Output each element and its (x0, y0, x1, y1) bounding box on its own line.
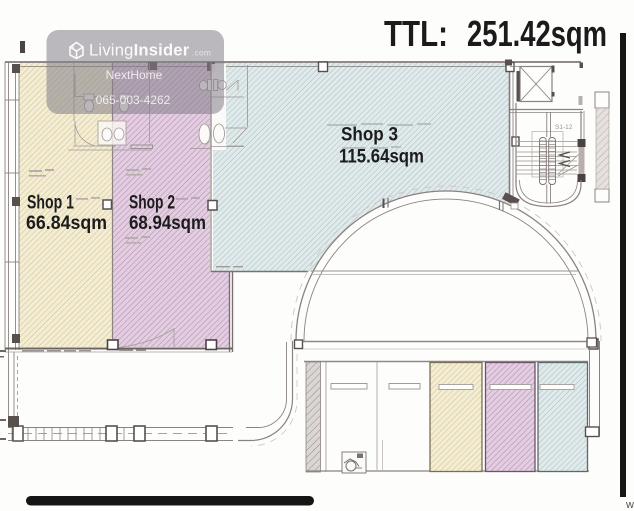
svg-text:66.84sqm: 66.84sqm (26, 213, 107, 234)
svg-text:Shop 2: Shop 2 (129, 193, 175, 214)
svg-text:68.94sqm: 68.94sqm (129, 213, 206, 234)
svg-text:TTL:: TTL: (384, 13, 448, 54)
svg-text:NextHome: NextHome (106, 68, 163, 82)
svg-text:S1-12: S1-12 (555, 124, 573, 131)
svg-text:Shop 3: Shop 3 (341, 124, 398, 146)
svg-text:251.42sqm: 251.42sqm (467, 13, 607, 54)
svg-text:Shop 1: Shop 1 (27, 193, 74, 214)
svg-text:w: w (625, 499, 634, 511)
svg-text:115.64sqm: 115.64sqm (339, 146, 424, 168)
svg-text:065-003-4262: 065-003-4262 (96, 93, 171, 107)
